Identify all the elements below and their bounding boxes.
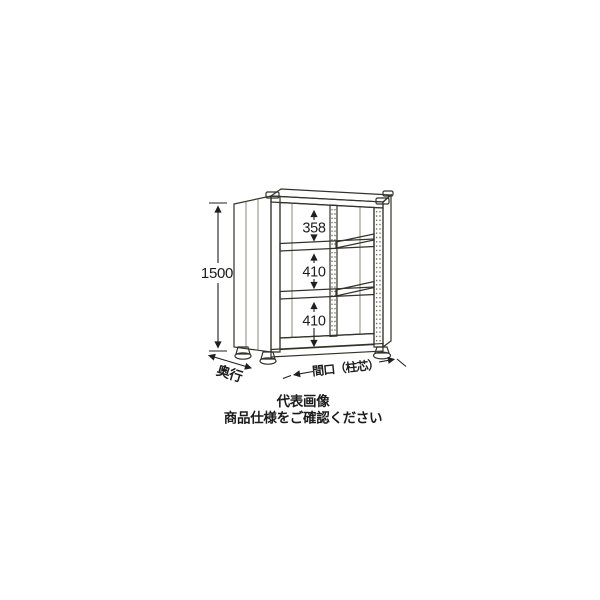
gap-top-label: 358: [302, 221, 326, 237]
product-diagram-svg: 1500 358 410 410 奥行: [0, 0, 600, 600]
width-dimension: 間口（柱芯）: [283, 357, 406, 379]
product-image: 1500 358 410 410 奥行: [0, 0, 600, 600]
right-pillar-perforated: [374, 195, 391, 347]
caption-line-2: 商品仕様をご確認ください: [224, 410, 382, 426]
depth-dimension: 奥行: [209, 356, 251, 385]
gap-dimension-bottom: 410: [302, 303, 326, 346]
gap-middle-label: 410: [302, 265, 326, 281]
caption: 代表画像 商品仕様をご確認ください: [224, 393, 382, 426]
gap-dimension-top: 358: [302, 211, 326, 241]
front-left-pillar: [271, 196, 280, 352]
caption-line-1: 代表画像: [276, 393, 331, 409]
bottom-rail: [271, 344, 383, 358]
height-dimension: 1500: [201, 203, 233, 351]
back-panel: [280, 203, 374, 339]
gap-dimension-middle: 410: [302, 255, 326, 289]
adjustable-foot: [235, 347, 251, 359]
mid-pillar-perforated: [330, 205, 337, 336]
gap-bottom-label: 410: [302, 314, 326, 330]
height-dimension-label: 1500: [201, 265, 233, 282]
side-panel: [234, 196, 271, 352]
adjustable-foot: [260, 352, 276, 364]
width-dimension-label: 間口（柱芯）: [311, 357, 379, 379]
